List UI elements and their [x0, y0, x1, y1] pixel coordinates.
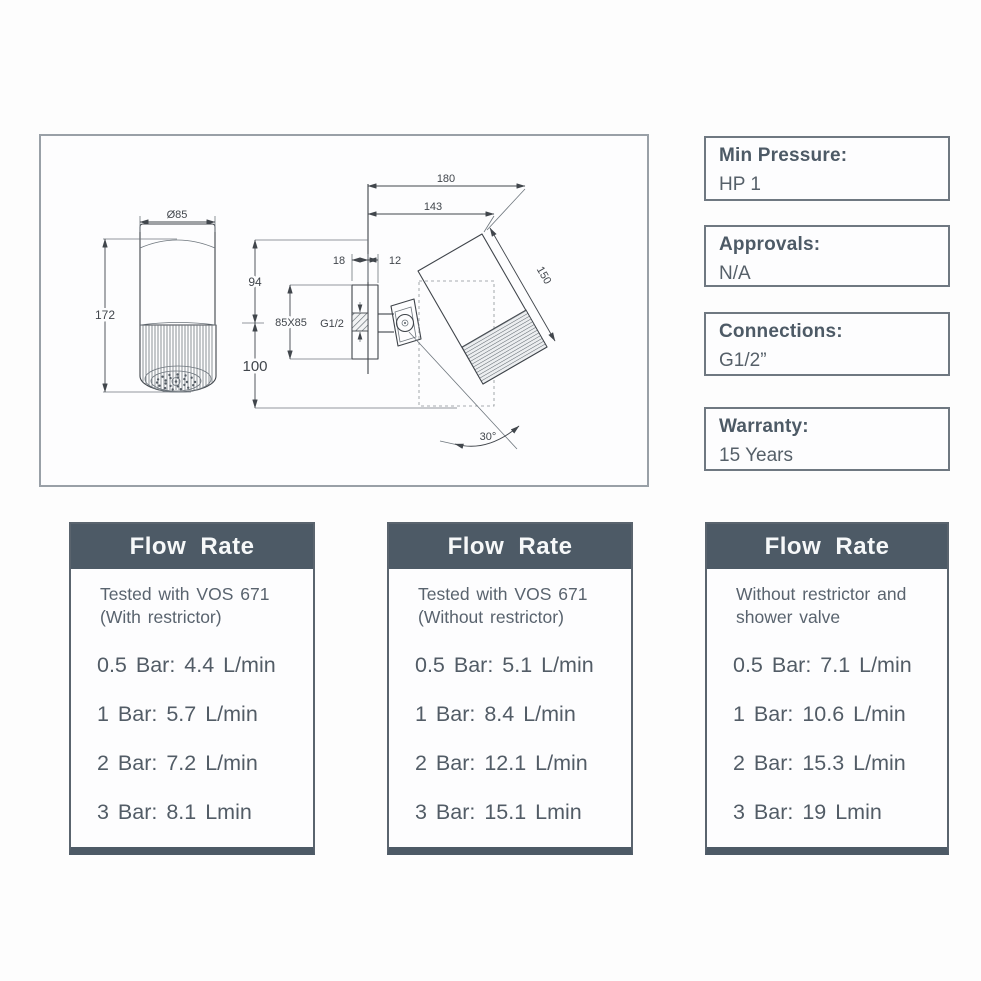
thread-connector-hatch	[352, 313, 368, 331]
flow-rate-table-with-restrictor: Flow Rate Tested with VOS 671 (With rest…	[69, 522, 315, 855]
flow-row: 3 Bar: 15.1 Lmin	[415, 800, 623, 825]
flow-rate-body: Tested with VOS 671 (With restrictor) 0.…	[71, 569, 313, 825]
dim-12: 12	[389, 255, 401, 267]
flow-row: 3 Bar: 8.1 Lmin	[97, 800, 305, 825]
approvals-value: N/A	[719, 263, 935, 285]
test-note-line2: (With restrictor)	[100, 606, 305, 629]
flow-row: 0.5 Bar: 5.1 L/min	[415, 653, 623, 678]
dim-angle: 30°	[480, 431, 497, 443]
flow-rate-body: Tested with VOS 671 (Without restrictor)…	[389, 569, 631, 825]
test-note-line2: shower valve	[736, 606, 939, 629]
flow-rate-header: Flow Rate	[71, 524, 313, 569]
flow-row: 2 Bar: 7.2 L/min	[97, 751, 305, 776]
flow-row: 1 Bar: 8.4 L/min	[415, 702, 623, 727]
dim-height: 172	[95, 308, 115, 322]
flow-row: 1 Bar: 5.7 L/min	[97, 702, 305, 727]
dim-18: 18	[333, 255, 345, 267]
dim-94: 94	[248, 275, 262, 289]
test-note-line1: Tested with VOS 671	[100, 583, 305, 606]
spec-sheet: { "colors": { "accent_slate": "#4d5a66",…	[0, 0, 981, 981]
shower-head-cad-drawing: Ø85 172	[41, 136, 647, 485]
technical-drawing-panel: Ø85 172	[39, 134, 649, 487]
dim-180: 180	[437, 173, 455, 185]
connections-value: G1/2”	[719, 350, 935, 372]
side-view: 30° 180 143 150 94 100 85X85	[242, 173, 555, 449]
front-view: Ø85 172	[95, 209, 216, 392]
dim-diameter: Ø85	[167, 209, 188, 221]
dim-plate: 85X85	[275, 317, 307, 329]
flow-rate-table-no-restrictor-no-valve: Flow Rate Without restrictor and shower …	[705, 522, 949, 855]
flow-rate-header: Flow Rate	[707, 524, 947, 569]
info-box-warranty: Warranty: 15 Years	[704, 407, 950, 471]
flow-rate-header: Flow Rate	[389, 524, 631, 569]
warranty-value: 15 Years	[719, 445, 935, 467]
test-note-line2: (Without restrictor)	[418, 606, 623, 629]
knurl-stripes	[143, 322, 212, 390]
dim-143: 143	[424, 201, 442, 213]
flow-row: 1 Bar: 10.6 L/min	[733, 702, 939, 727]
flow-rate-table-without-restrictor: Flow Rate Tested with VOS 671 (Without r…	[387, 522, 633, 855]
flow-row: 3 Bar: 19 Lmin	[733, 800, 939, 825]
info-box-min-pressure: Min Pressure: HP 1	[704, 136, 950, 201]
dim-100: 100	[242, 358, 267, 375]
flow-row: 0.5 Bar: 4.4 L/min	[97, 653, 305, 678]
warranty-label: Warranty:	[719, 416, 935, 438]
connections-label: Connections:	[719, 321, 935, 343]
test-note-line1: Tested with VOS 671	[418, 583, 623, 606]
flow-rate-body: Without restrictor and shower valve 0.5 …	[707, 569, 947, 825]
flow-row: 0.5 Bar: 7.1 L/min	[733, 653, 939, 678]
approvals-label: Approvals:	[719, 234, 935, 256]
min-pressure-label: Min Pressure:	[719, 145, 935, 167]
dim-150: 150	[534, 265, 554, 287]
min-pressure-value: HP 1	[719, 174, 935, 196]
info-box-approvals: Approvals: N/A	[704, 225, 950, 287]
flow-row: 2 Bar: 12.1 L/min	[415, 751, 623, 776]
flow-row: 2 Bar: 15.3 L/min	[733, 751, 939, 776]
tilted-head-knurl-band	[462, 310, 547, 384]
test-note-line1: Without restrictor and	[736, 583, 939, 606]
info-box-connections: Connections: G1/2”	[704, 312, 950, 376]
dim-thread: G1/2	[320, 318, 344, 330]
